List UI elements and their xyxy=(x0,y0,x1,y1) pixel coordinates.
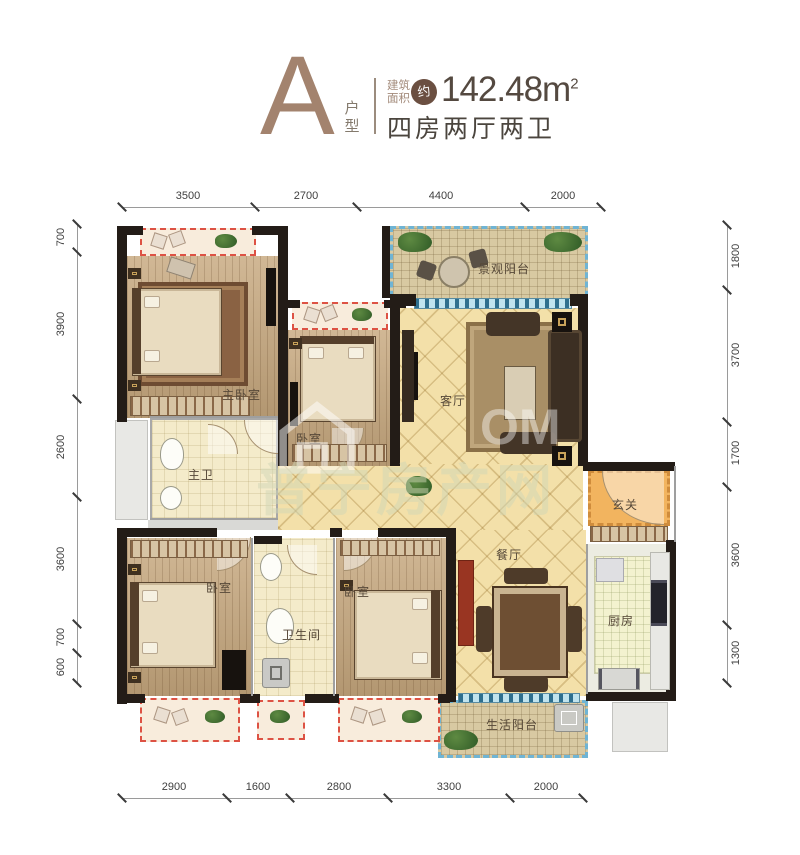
tv-cabinet-icon xyxy=(402,330,414,422)
dim-bottom-2: 1600 xyxy=(246,781,270,793)
sideboard-icon xyxy=(458,560,474,646)
room-label-living-room: 客厅 xyxy=(440,392,466,409)
chair-icon xyxy=(476,606,492,652)
dim-right-5: 1300 xyxy=(730,633,742,673)
bed-headboard xyxy=(130,582,139,666)
plant-icon xyxy=(444,730,478,750)
nightstand-icon xyxy=(128,672,141,683)
area-number: 142.48m xyxy=(441,70,570,109)
header-divider xyxy=(374,78,376,134)
approx-badge: 约 xyxy=(409,77,438,106)
dim-top-4: 2000 xyxy=(551,190,575,202)
dim-left-1: 700 xyxy=(55,217,67,257)
wall-segment xyxy=(330,528,342,537)
dim-left-3: 2600 xyxy=(55,427,67,467)
wall-segment xyxy=(583,462,675,471)
tv-icon xyxy=(414,352,418,400)
plant-icon xyxy=(205,710,225,723)
wall-segment xyxy=(117,694,145,703)
bed-headboard xyxy=(300,336,374,344)
dim-bottom-5: 2000 xyxy=(534,781,558,793)
pillow-icon xyxy=(144,296,160,308)
dining-balcony-window xyxy=(458,693,580,703)
wall-segment xyxy=(390,294,416,306)
wall-segment xyxy=(117,528,127,704)
washer-icon xyxy=(262,658,290,688)
laundry-basin-icon xyxy=(554,704,584,732)
room-label-dining-room: 餐厅 xyxy=(496,546,522,563)
dim-bottom-1: 2900 xyxy=(162,781,186,793)
wall-segment xyxy=(378,528,446,537)
nightstand-icon xyxy=(128,564,141,575)
room-label-master-bathroom: 主卫 xyxy=(188,466,214,483)
toilet-icon xyxy=(160,438,184,470)
unit-type-label: 户型 xyxy=(344,100,360,136)
wall-segment xyxy=(117,226,143,235)
pillow-icon xyxy=(142,590,158,602)
plant-icon xyxy=(270,710,290,723)
wall-segment xyxy=(117,226,127,422)
built-area-caption-line2: 面积 xyxy=(387,93,410,106)
chair-icon xyxy=(504,568,548,584)
partition-wall xyxy=(251,538,253,696)
desk-icon xyxy=(222,650,246,690)
room-label-bedroom-4: 卧室 xyxy=(344,583,370,600)
unit-type-letter: A xyxy=(260,40,335,152)
bed-icon xyxy=(354,590,442,680)
partition-wall xyxy=(333,538,335,696)
dim-line-left xyxy=(77,224,78,683)
wall-segment xyxy=(586,692,676,701)
dim-top-3: 4400 xyxy=(429,190,453,202)
nightstand-icon xyxy=(128,380,141,391)
floorplan-page: { "header": { "type_letter": "A", "type_… xyxy=(0,0,800,855)
sink-icon xyxy=(260,553,282,581)
room-label-entry-hall: 玄关 xyxy=(612,496,638,513)
living-balcony-window xyxy=(414,298,572,309)
dim-bottom-3: 2800 xyxy=(327,781,351,793)
dim-right-2: 3700 xyxy=(730,335,742,375)
dining-table-icon xyxy=(492,586,568,678)
fridge-icon xyxy=(596,558,624,582)
dim-line-right xyxy=(727,225,728,683)
room-label-utility-balcony: 生活阳台 xyxy=(486,716,538,733)
wall-segment xyxy=(382,226,390,298)
room-label-kitchen: 厨房 xyxy=(608,612,634,629)
wall-segment xyxy=(446,528,456,702)
dim-right-3: 1700 xyxy=(730,433,742,473)
pillow-icon xyxy=(308,347,324,359)
wall-segment xyxy=(254,536,282,544)
plant-icon xyxy=(398,232,432,252)
bed-headboard xyxy=(431,590,440,678)
pillow-icon xyxy=(142,642,158,654)
pillow-icon xyxy=(412,598,428,610)
partition-wall xyxy=(674,466,676,542)
wall-segment xyxy=(240,694,260,703)
wall-segment xyxy=(390,306,400,466)
plant-icon xyxy=(215,234,237,248)
room-label-master-bedroom: 主卧室 xyxy=(222,386,261,403)
layout-summary: 四房两厅两卫 xyxy=(387,109,555,145)
built-area-caption-line1: 建筑 xyxy=(387,80,410,93)
watermark-site-name: 普宁房产网 xyxy=(256,446,556,527)
built-area-caption: 建筑 面积 xyxy=(387,80,410,105)
dim-bottom-4: 3300 xyxy=(437,781,461,793)
dim-left-2: 3900 xyxy=(55,304,67,344)
wall-segment xyxy=(438,694,450,703)
dim-right-4: 3600 xyxy=(730,535,742,575)
dim-left-4: 3600 xyxy=(55,539,67,579)
wall-segment xyxy=(288,300,300,308)
chair-icon xyxy=(504,676,548,692)
built-area-value: 142.48m2 xyxy=(441,70,578,110)
wall-segment xyxy=(117,528,217,537)
armchair-icon xyxy=(486,312,540,336)
dim-top-1: 3500 xyxy=(176,190,200,202)
pillow-icon xyxy=(348,347,364,359)
kitchen-sink-icon xyxy=(598,668,640,690)
stairwell-area xyxy=(115,420,148,520)
dim-top-2: 2700 xyxy=(294,190,318,202)
wardrobe-icon xyxy=(340,540,440,556)
wardrobe-icon xyxy=(130,540,248,558)
partition-wall xyxy=(150,416,278,418)
nightstand-icon xyxy=(128,268,141,279)
wall-segment xyxy=(570,294,588,306)
pillow-icon xyxy=(412,652,428,664)
partition-wall xyxy=(586,544,588,694)
plant-icon xyxy=(402,710,422,723)
entry-shoe-cabinet xyxy=(590,526,668,542)
dim-line-top xyxy=(122,207,601,208)
bed-headboard xyxy=(132,288,141,374)
plant-icon xyxy=(544,232,582,252)
tv-cabinet-icon xyxy=(266,268,276,326)
room-label-bathroom: 卫生间 xyxy=(282,626,321,643)
nightstand-icon xyxy=(289,338,302,349)
area-superscript: 2 xyxy=(570,75,577,92)
sink-icon xyxy=(160,486,182,510)
dim-line-bottom xyxy=(122,798,583,799)
room-label-view-balcony: 景观阳台 xyxy=(478,260,530,277)
exterior-gray-area xyxy=(612,702,668,752)
floor-lamp-icon xyxy=(552,312,572,332)
patio-table-icon xyxy=(438,256,470,288)
plant-icon xyxy=(352,308,372,321)
cooktop-icon xyxy=(651,580,667,626)
pillow-icon xyxy=(144,350,160,362)
chair-icon xyxy=(566,606,582,652)
dim-left-6: 600 xyxy=(55,647,67,687)
room-label-bedroom-3: 卧室 xyxy=(206,579,232,596)
dim-right-1: 1800 xyxy=(730,236,742,276)
